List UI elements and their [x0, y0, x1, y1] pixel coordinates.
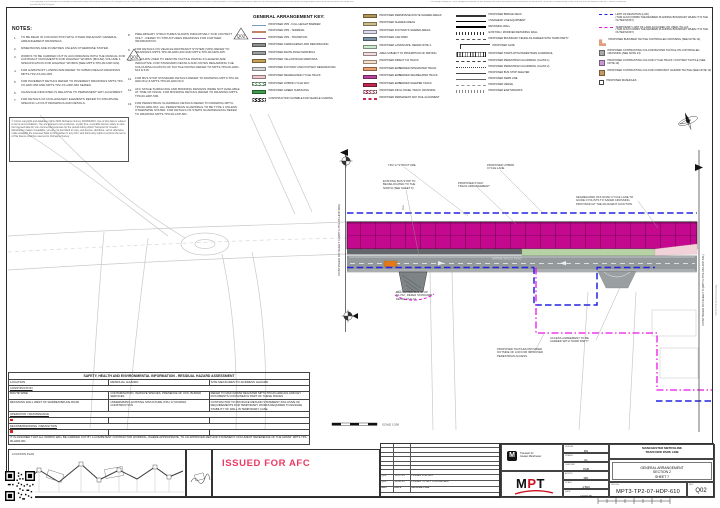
legend-swatch	[363, 60, 377, 64]
legend-swatch	[456, 52, 486, 57]
legend-item-label: CONSTRUCTION SUITABLE FOR VEHICLE LOADIN…	[269, 98, 333, 101]
field-checked: CHECKEDPAB	[563, 462, 609, 471]
signature-sketch	[187, 450, 213, 498]
legend-item-label: PROPOSED CONTRASTING COLOUR CYCLE TRACK …	[608, 60, 713, 66]
hazard-cell: CONTAMINATION, INVASIVE SPECIES, PRESENC…	[109, 391, 209, 400]
legend-swatch	[252, 67, 266, 71]
legend-swatch	[363, 45, 377, 49]
legend-item-label: PROPOSED DIRECT FIX TRACK	[380, 60, 419, 63]
legend-item-label: PROPOSED EMBEDDED SLEEPER TRACK	[380, 83, 432, 86]
legend-item: PROPOSED CONTRASTING COLOUR CORDUROY HAZ…	[599, 70, 712, 76]
note-text: FOR DETAILS OF NON-HIGHWAY ELEMENTS REFE…	[21, 98, 126, 105]
legend-item: PROPOSED VRS - FULL HEIGHT BARRIER	[252, 24, 360, 27]
notes-column-left: 1.TO BE READ IN CONJUNCTION WITH OTHER R…	[14, 36, 126, 109]
os-copyright-box: © Crown copyright and database rights 20…	[9, 117, 129, 162]
note-text: CHAINAGE INDICATED IS RELATIVE TO PERMAN…	[21, 91, 123, 95]
field-value: PAB	[564, 467, 608, 471]
hazard-row: ROUTE WIDECONTAMINATION, INVASIVE SPECIE…	[9, 391, 310, 400]
note-item: 9.FOR DETAILS ON VEHICLE RESTRAINT SYSTE…	[128, 48, 240, 55]
hazard-cell: REFER TO MAIN HDMW REGISTER MPT3-TP0-00-…	[209, 391, 309, 400]
legend-swatch	[599, 39, 606, 46]
mpt-logo: MPT	[516, 477, 545, 490]
legend-item: AREA SUBJECT TO PROHIBITION OF DRIVING	[363, 52, 455, 56]
legend-item: PROPOSED PERMISSIVE ROUTE SHARED AREAS	[363, 14, 455, 18]
legend-item: PROPOSED BRIDGE DECK	[456, 14, 598, 17]
legend-swatch	[456, 67, 486, 68]
plan-annotation: PROPOSED P-WAY TRACK ARRANGEMENT	[458, 182, 490, 189]
note-item: 7.FOR DETAILS OF NON-HIGHWAY ELEMENTS RE…	[14, 98, 126, 105]
legend-item-label: PROPOSED PEDESTRIAN GUARDRAIL (CLASS 1)	[489, 60, 550, 63]
revision-rev: Q02	[381, 475, 394, 480]
legend-swatch	[456, 90, 486, 93]
legend-item: PROPOSED INFILL PANEL TRACK CROSSING	[363, 90, 455, 94]
note-item: 1.TO BE READ IN CONJUNCTION WITH OTHER R…	[14, 36, 126, 43]
tfgm-logo-text: Transport for Greater Manchester	[520, 453, 541, 459]
legend-swatch	[363, 30, 377, 34]
hazard-row: RETAINING WALL WEST OF WARREN BRUCE ROAD…	[9, 400, 310, 412]
legend-item-label: PROPOSED BUFF/RED TACTILE CONTROLLED CRO…	[609, 39, 701, 42]
note-item: 10.COLOURS USED TO DENOTE TACTILE PAVING…	[128, 58, 240, 73]
revision-rev	[381, 453, 394, 456]
hazard-assessment-table: SAFETY, HEALTH AND ENVIRONMENTAL INFORMA…	[8, 372, 310, 445]
legend-item: PROPOSED BOUNDARY FENCE AS AGREED WITH T…	[456, 38, 598, 41]
note-number: 2.	[14, 47, 21, 51]
legend-swatch	[599, 27, 613, 28]
legend-swatch	[252, 51, 266, 55]
plan-annotation: RELOCATED BUS STOP 'ELY02', REFER STANDA…	[396, 291, 432, 301]
disclaimer-top-left: The copyright in this document (includin…	[30, 1, 360, 6]
legend-swatch	[252, 31, 266, 32]
legend-item: PROPOSED GATE	[456, 44, 598, 49]
legend-swatch	[599, 14, 613, 15]
hazard-cell: CONTRACTOR TO PRODUCE METHOD STATEMENT I…	[209, 400, 309, 412]
hazard-footnote: IT IS ASSUMED THAT ALL WORKS WILL BE CAR…	[9, 435, 310, 444]
note-text: WORKS TO BE CARRIED OUT IN ACCORDANCE WI…	[21, 55, 126, 66]
revision-row: REVDATEDESCRIPTION	[381, 487, 499, 494]
field-value: 1:500	[564, 485, 608, 489]
legend-item-label: AREA SUBJECT TO PROHIBITION OF DRIVING	[380, 53, 437, 56]
legend-item: EXISTING / MODIFIED RETAINING WALL	[456, 32, 598, 35]
mpt-logo-swoosh	[514, 490, 554, 496]
revision-date	[394, 453, 411, 456]
legend-item: PROPOSED PEDESTRIAN GUARDRAIL (CLASS 2)	[456, 66, 598, 69]
svg-text:Q02: Q02	[237, 34, 246, 39]
project-name: MANCHESTER METROLINK TRAFFORD PARK LINE	[610, 445, 714, 455]
legend-item: OVERHEAD LINE EQUIPMENT	[456, 20, 598, 23]
legend-item: PROPOSED HYBRID CYCLE WAY	[252, 82, 360, 86]
hazard-table-title: SAFETY, HEALTH AND ENVIRONMENTAL INFORMA…	[9, 373, 310, 380]
legend-item: PROPOSED VRS - TERMINAL	[252, 30, 360, 33]
legend-item-label: PROPOSED CONTRASTING COLOUR BLISTER TACT…	[608, 50, 713, 56]
legend-item: TEMPORARY LIMIT OF LAND ACQUIRED OR USED…	[599, 27, 712, 36]
revision-rev: REV	[381, 487, 394, 493]
legend-item: PROPOSED EMBEDDED SLEEPER TRACK	[363, 82, 455, 86]
legend-item-label: PROPOSED CARRIAGEWAY AND RESURFACING	[269, 44, 329, 47]
note-number: 3.	[14, 55, 21, 66]
notes-column-right: 8.PRELIMINARY STRUCTURES SHOWN INDICATIV…	[128, 33, 240, 120]
field-label: DATE	[565, 491, 570, 493]
note-number: 12.	[128, 88, 135, 99]
revision-description	[411, 444, 499, 447]
legend-column-1: PROPOSED VRS - FULL HEIGHT BARRIERPROPOS…	[252, 24, 360, 105]
margin-ruler	[596, 498, 672, 504]
legend-column-2: PROPOSED PERMISSIVE ROUTE SHARED AREASPR…	[363, 14, 455, 104]
drawing-sheet: CONTINUED ON SHEET 6 (MPT3-TP2-06-HDP-60…	[0, 0, 720, 508]
field-label: CHECKED	[565, 464, 575, 466]
revision-date	[394, 448, 411, 451]
revision-description: ISSUED TO MPT FOR REVIEW	[411, 481, 499, 486]
legend-item: PROPOSED PEDESTRIAN GUARDRAIL (CLASS 1)	[456, 60, 598, 63]
mpt-logo-letter: T	[537, 476, 545, 491]
note-number: 11.	[128, 77, 135, 84]
revision-date	[394, 462, 411, 465]
legend-item: PROPOSED FOOTWAYS SHARED AREAS	[363, 29, 455, 33]
mpt-logo-letter: P	[527, 476, 536, 491]
legend-item-label: PROPOSED VERGE	[489, 84, 514, 87]
title-block: M Transport for Greater Manchester MPT D…	[500, 443, 714, 497]
legend-item: PROPOSED MANHOLES	[599, 80, 712, 85]
legend-item-label: PROPOSED GREEN SURFACING	[269, 90, 310, 93]
svg-text:Q02: Q02	[130, 55, 139, 60]
revision-description	[411, 453, 499, 456]
mpt-logo-cell: MPT	[501, 471, 563, 498]
legend-swatch	[460, 44, 490, 49]
note-text: DIMENSIONS ARE IN METRES UNLESS OTHERWIS…	[21, 47, 109, 51]
drawing-number-cell: DRG No. MPT3-TP2-07-HDP-610	[609, 482, 687, 498]
legend-swatch	[599, 50, 605, 56]
legend-item: PROPOSED FOOTWAY AND FOOTWAY RESURFACING	[252, 66, 360, 70]
revision-description	[411, 448, 499, 451]
legend-swatch	[363, 90, 377, 94]
legend-item-label: PROPOSED BUS STOP SHELTER	[489, 72, 530, 75]
field-label: DRAWN	[565, 455, 573, 457]
note-item: 13.FOR PEDESTRIAN GUARDRAIL DETAILS REFE…	[128, 102, 240, 117]
legend-swatch	[363, 22, 377, 26]
legend-swatch	[456, 85, 486, 86]
legend-swatch	[456, 79, 486, 80]
legend-item-label: PROPOSED EMBEDDED INTEGRATED TRACK	[380, 68, 437, 71]
legend-item: PROPOSED SHARED AREAS	[363, 22, 455, 26]
legend-item-label: LIMIT OF DEVIATION (LOD) (THIS ALSO FORM…	[616, 14, 713, 23]
legend-item: PROPOSED KERB LINE	[456, 78, 598, 81]
note-item: 5.FOR PAVEMENT DETAILS REFER TO PAVEMENT…	[14, 80, 126, 87]
title-inner-border: GENERAL ARRANGEMENT SECTION 2 SHEET 7	[612, 462, 712, 480]
field-value: 10.07.15	[564, 494, 608, 498]
legend-swatch	[456, 61, 486, 62]
legend-item-label: PROPOSED PERMISSIVE ROUTE SHARED AREAS	[380, 15, 442, 18]
notes-title: NOTES:	[12, 26, 32, 32]
note-number: 7.	[14, 98, 21, 105]
legend-swatch	[599, 60, 605, 66]
legend-item-label: PROPOSED YELLOW ROAD MARKINGS	[269, 59, 318, 62]
note-item: 12.AFC STAGE SURFACING AND BONDING DESIG…	[128, 88, 240, 99]
plan-annotation: ACCESS AGREEMENT TO BE AGREED WITH THIRD…	[550, 337, 589, 344]
note-number: 6.	[14, 91, 21, 95]
field-label: DESIGN	[565, 446, 573, 448]
revision-description	[411, 466, 499, 469]
legend-item: PROPOSED EMBEDDED INTEGRATED TRACK	[363, 67, 455, 71]
revision-code: Q02	[688, 488, 714, 494]
disclaimer-top-right: The design relating to TfGM equipment de…	[430, 1, 712, 6]
revision-description: ISSUED FOR AFC	[411, 475, 499, 480]
legend-item-label: OVERHEAD LINE EQUIPMENT	[489, 20, 526, 23]
note-text: FOR DETAILS ON VEHICLE RESTRAINT SYSTEM …	[135, 48, 240, 55]
legend-item-label: PROPOSED VRS - TRANSITION	[269, 37, 308, 40]
legend-item-label: TEMPORARY LIMIT OF LAND ACQUIRED OR USED…	[616, 27, 713, 36]
legend-swatch	[456, 32, 486, 35]
legend-swatch	[363, 14, 377, 18]
legend-swatch	[456, 15, 486, 17]
mpt-logo-letter: M	[516, 476, 527, 491]
revision-triangle-icon: Q02	[233, 27, 249, 40]
legend-swatch	[599, 70, 605, 76]
plan-annotation: TRU 17 STRUCTURE	[388, 164, 416, 167]
legend-item: PROPOSED GREEN SURFACING	[252, 90, 360, 94]
revision-rev	[381, 457, 394, 460]
legend-swatch	[456, 26, 486, 28]
revision-rev	[381, 470, 394, 473]
legend-swatch	[252, 43, 266, 47]
legend-item: PROPOSED PERMANENT WAY RAIL ALIGNMENT	[363, 97, 455, 100]
note-text: FOR HARD/SOFT LANDSCAPE REFER TO URBAN R…	[21, 69, 126, 76]
hazard-cell: ROUTE WIDE	[9, 391, 109, 400]
note-item: 2.DIMENSIONS ARE IN METRES UNLESS OTHERW…	[14, 47, 126, 51]
legend-item: PROPOSED CONTRASTING COLOUR BLISTER TACT…	[599, 50, 712, 56]
plan-annotation: EXISTING BUS STOP TO BE RELOCATED TO THE…	[383, 180, 415, 190]
revision-date	[394, 470, 411, 473]
legend-item: CONSTRUCTION SUITABLE FOR VEHICLE LOADIN…	[252, 98, 360, 102]
legend-swatch	[363, 52, 377, 56]
field-design: DESIGNRG	[563, 444, 609, 453]
drawing-title: GENERAL ARRANGEMENT SECTION 2 SHEET 7	[613, 463, 711, 480]
legend-swatch	[456, 39, 486, 40]
note-text: COLOURS USED TO DENOTE TACTILE PAVING IN…	[135, 58, 240, 73]
legend-item-label: PROPOSED STEPS WITH PEDESTRIAN GUARDRAIL	[489, 53, 553, 56]
legend-swatch	[363, 75, 377, 79]
location-plan-diagram	[9, 450, 187, 498]
legend-swatch	[363, 83, 377, 87]
signature-panel	[186, 449, 212, 497]
note-number: 8.	[128, 33, 135, 44]
legend-item-label: PROPOSED BOUNDARY FENCE AS AGREED WITH T…	[489, 38, 569, 41]
legend-item-label: PROPOSED INFILL PANEL TRACK CROSSING	[380, 90, 436, 93]
legend-item-label: PROPOSED PEDESTRIAN GUARDRAIL (CLASS 2)	[489, 66, 550, 69]
revision-description	[411, 457, 499, 460]
plan-annotation: SEGREGATED OFF ROAD CYCLE LANE TO GUIDE …	[576, 196, 633, 206]
legend-item: PROPOSED DIRECT FIX TRACK	[363, 59, 455, 63]
tfgm-logo-cell: M Transport for Greater Manchester	[501, 444, 563, 471]
note-item: 3.WORKS TO BE CARRIED OUT IN ACCORDANCE …	[14, 55, 126, 66]
revision-rev	[381, 462, 394, 465]
revision-date	[394, 466, 411, 469]
issued-for-afc-stamp: ISSUED FOR AFC	[222, 458, 310, 469]
revision-description	[411, 470, 499, 473]
revision-date	[394, 457, 411, 460]
drg-no-label: DRG No.	[611, 484, 619, 486]
legend-item: PROPOSED VERGE	[456, 84, 598, 87]
legend-item: PROPOSED CARRIAGEWAY AND RESURFACING	[252, 43, 360, 47]
legend-swatch	[252, 98, 266, 102]
legend-swatch	[456, 21, 486, 22]
legend-item: PROPOSED YELLOW ROAD MARKINGS	[252, 59, 360, 63]
legend-item: PROPOSED SEGREGATED CYCLE TRACK	[252, 74, 360, 78]
legend-column-3: PROPOSED BRIDGE DECKOVERHEAD LINE EQUIPM…	[456, 14, 598, 96]
legend-item: PROPOSED BUS STOP SHELTER	[456, 72, 598, 75]
note-text: FOR PEDESTRIAN GUARDRAIL DETAILS REFER T…	[135, 102, 240, 117]
revision-date	[394, 444, 411, 447]
legend-item-label: PROPOSED EMBEDDED SEGREGATED TRACK	[380, 75, 438, 78]
title-block-fields: DESIGNRGDRAWNCLCHECKEDPABAPPR'DMDSCALE1:…	[563, 444, 609, 498]
legend-swatch	[599, 80, 604, 85]
legend-item-label: PROPOSED FOOTWAYS SHARED AREAS	[380, 30, 431, 33]
revision-rev	[381, 448, 394, 451]
note-item: 4.FOR HARD/SOFT LANDSCAPE REFER TO URBAN…	[14, 69, 126, 76]
legend-item-label: PROPOSED SEGREGATED CYCLE TRACK	[269, 75, 321, 78]
hazard-marker-icon	[10, 419, 13, 422]
legend-item-label: PROPOSED EARTHWORKS	[489, 90, 523, 93]
revision-table: Q0210.07.15ISSUED FOR AFCQ0119.06.15ISSU…	[380, 443, 500, 497]
legend-item-label: PROPOSED CONTRASTING COLOUR CORDUROY HAZ…	[608, 70, 712, 73]
field-drawn: DRAWNCL	[563, 453, 609, 462]
legend-item-label: EXISTING / MODIFIED RETAINING WALL	[489, 32, 538, 35]
legend-item-label: PROPOSED KERB LINE	[489, 78, 518, 81]
legend-item: PROPOSED CONTRASTING COLOUR CYCLE TRACK …	[599, 60, 712, 66]
legend-item: PROPOSED LANDSCAPE, REFER NOTE 4.	[363, 44, 455, 48]
legend-item: PROPOSED EARTHWORKS	[456, 90, 598, 93]
legend-item-label: PROPOSED LANDSCAPE, REFER NOTE 4.	[380, 45, 432, 48]
qr-code	[5, 471, 35, 501]
drawing-title-cell: GENERAL ARRANGEMENT SECTION 2 SHEET 7	[609, 459, 715, 482]
revision-date: DATE	[394, 487, 411, 493]
note-text: AFC STAGE SURFACING AND BONDING DESIGNS …	[135, 88, 240, 99]
plan-annotation: PROPOSED TACTILES PROVIDED OUTSIDE OF LO…	[497, 348, 543, 358]
note-item: 11.FOR BUS STOP STANDARD DETAILS REFER T…	[128, 77, 240, 84]
revision-triangle-icon: Q02	[126, 48, 142, 61]
legend-item-label: PROPOSED CAR PARK	[380, 37, 409, 40]
note-item: 6.CHAINAGE INDICATED IS RELATIVE TO PERM…	[14, 91, 126, 95]
legend-item: PROPOSED STEPS WITH PEDESTRIAN GUARDRAIL	[456, 52, 598, 57]
field-date: DATE10.07.15	[563, 489, 609, 498]
legend-swatch	[252, 90, 266, 94]
legend-item-label: PROPOSED WHITE ROAD MARKINGS	[269, 52, 316, 55]
legend-swatch	[252, 25, 266, 26]
project-cell: MANCHESTER METROLINK TRAFFORD PARK LINE	[609, 444, 715, 459]
legend-swatch	[252, 38, 266, 39]
note-number: 4.	[14, 69, 21, 76]
legend-item: PROPOSED VRS - TRANSITION	[252, 37, 360, 40]
field-apprd: APPR'DMD	[563, 471, 609, 480]
legend-item-label: PROPOSED MANHOLES	[607, 80, 637, 83]
legend-item: PROPOSED EMBEDDED SEGREGATED TRACK	[363, 75, 455, 79]
legend-item-label: PROPOSED VRS - FULL HEIGHT BARRIER	[269, 24, 321, 27]
margin-file-note: MPT3-TP2-07-HDP-610.dwg	[715, 284, 718, 315]
note-text: FOR PAVEMENT DETAILS REFER TO PAVEMENT D…	[21, 80, 126, 87]
field-value: MD	[564, 476, 608, 480]
note-number: 5.	[14, 80, 21, 87]
note-number: 1.	[14, 36, 21, 43]
revision-rev	[381, 444, 394, 447]
rev-label: REV	[689, 484, 693, 486]
plan-annotation: PROPOSED HYBRID CYCLE LANE	[487, 164, 514, 171]
revision-description	[411, 462, 499, 465]
note-text: PRELIMINARY STRUCTURES SHOWN INDICATIVEL…	[135, 33, 240, 44]
legend-title: GENERAL ARRANGEMENT KEY:	[253, 14, 325, 19]
note-text: FOR BUS STOP STANDARD DETAILS REFER TO D…	[135, 77, 240, 84]
field-label: APPR'D	[565, 473, 573, 475]
hazard-marker-icon	[10, 430, 13, 433]
field-label: SCALE	[565, 482, 572, 484]
legend-item-label: PROPOSED FOOTWAY AND FOOTWAY RESURFACING	[269, 67, 336, 70]
legend-item-label: PROPOSED PERMANENT WAY RAIL ALIGNMENT	[380, 97, 440, 100]
legend-item-label: RETAINING WALL	[489, 26, 511, 29]
field-scale: SCALE1:500	[563, 480, 609, 489]
revision-description: DESCRIPTION	[411, 487, 499, 493]
revision-date: 19.06.15	[394, 481, 411, 486]
legend-item: RETAINING WALL	[456, 26, 598, 29]
note-item: 8.PRELIMINARY STRUCTURES SHOWN INDICATIV…	[128, 33, 240, 44]
legend-swatch	[363, 37, 377, 41]
legend-item: PROPOSED BUFF/RED TACTILE CONTROLLED CRO…	[599, 39, 712, 46]
legend-item-label: PROPOSED SHARED AREAS	[380, 22, 416, 25]
note-text: TO BE READ IN CONJUNCTION WITH OTHER REL…	[21, 36, 126, 43]
legend-swatch	[456, 73, 486, 74]
legend-item-label: PROPOSED GATE	[493, 45, 515, 48]
legend-column-4: LIMIT OF DEVIATION (LOD) (THIS ALSO FORM…	[599, 14, 712, 89]
revision-rev	[381, 466, 394, 469]
afc-stamp-panel: ISSUED FOR AFC	[212, 449, 380, 497]
field-value: RG	[564, 449, 608, 453]
legend-swatch	[252, 82, 266, 86]
hazard-cell: RETAINING WALL WEST OF WARREN BRUCE ROAD	[9, 400, 109, 412]
legend-item: PROPOSED CAR PARK	[363, 37, 455, 41]
note-number: 13.	[128, 102, 135, 117]
legend-swatch	[363, 67, 377, 71]
legend-swatch	[363, 98, 377, 101]
field-value: CL	[564, 458, 608, 462]
hazard-cell: UNDERMINING EXISTING STRUCTURE (TRU 17) …	[109, 400, 209, 412]
revision-cell: REV Q02	[687, 482, 715, 498]
legend-item-label: PROPOSED HYBRID CYCLE WAY	[269, 83, 310, 86]
legend-swatch	[252, 75, 266, 79]
drawing-number: MPT3-TP2-07-HDP-610	[610, 489, 686, 495]
legend-swatch	[252, 59, 266, 63]
tfgm-logo-icon: M	[507, 451, 517, 461]
legend-item-label: PROPOSED BRIDGE DECK	[489, 14, 522, 17]
revision-date: 10.07.15	[394, 475, 411, 480]
legend-item: LIMIT OF DEVIATION (LOD) (THIS ALSO FORM…	[599, 14, 712, 23]
revision-rev: Q01	[381, 481, 394, 486]
legend-item-label: PROPOSED VRS - TERMINAL	[269, 30, 305, 33]
legend-item: PROPOSED WHITE ROAD MARKINGS	[252, 51, 360, 55]
